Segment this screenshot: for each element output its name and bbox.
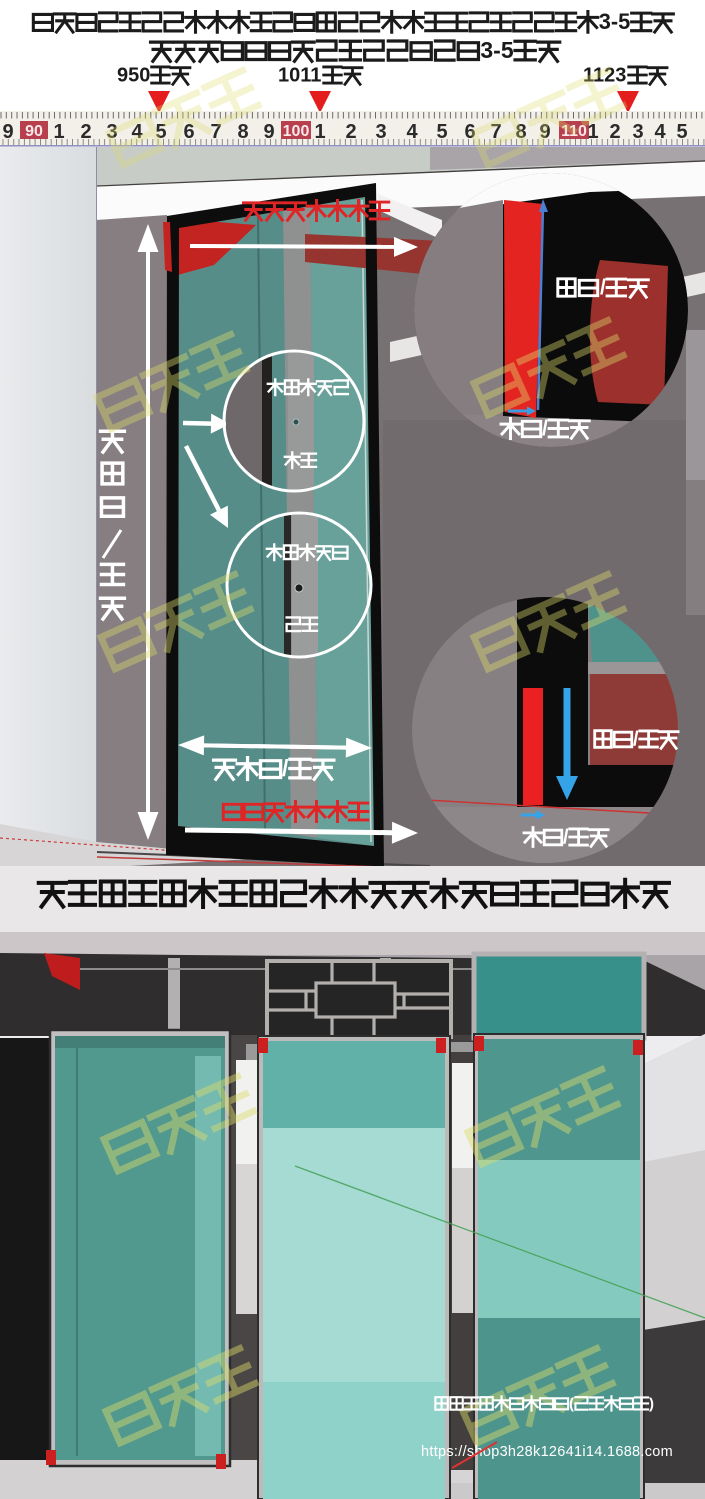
svg-text:950: 950 <box>117 64 150 86</box>
svg-text:5: 5 <box>436 121 447 143</box>
svg-text:3-5: 3-5 <box>480 37 513 63</box>
svg-text:8: 8 <box>237 121 248 143</box>
svg-text:3: 3 <box>375 121 386 143</box>
svg-text:3: 3 <box>632 121 643 143</box>
svg-text:(: ( <box>569 1395 574 1412</box>
svg-text:/: / <box>282 755 289 781</box>
svg-text:/: / <box>600 276 606 299</box>
svg-text:/: / <box>633 728 639 750</box>
svg-text:/: / <box>542 417 548 440</box>
svg-text:2: 2 <box>80 121 91 143</box>
svg-text:3-5: 3-5 <box>599 9 631 34</box>
svg-text:100: 100 <box>283 123 310 140</box>
svg-text:1: 1 <box>314 121 325 143</box>
svg-text:https://shop3h28k12641i14.1688: https://shop3h28k12641i14.1688.com <box>421 1444 673 1460</box>
svg-text:9: 9 <box>2 121 13 143</box>
svg-text:2: 2 <box>609 121 620 143</box>
svg-text:4: 4 <box>654 121 666 143</box>
svg-text:5: 5 <box>676 121 687 143</box>
svg-text:90: 90 <box>25 123 43 140</box>
svg-text:1: 1 <box>53 121 64 143</box>
svg-text:2: 2 <box>345 121 356 143</box>
svg-text:1011: 1011 <box>278 64 321 86</box>
svg-text:/: / <box>563 826 569 848</box>
svg-text:4: 4 <box>406 121 418 143</box>
svg-text:9: 9 <box>263 121 274 143</box>
svg-text:): ) <box>649 1395 654 1412</box>
